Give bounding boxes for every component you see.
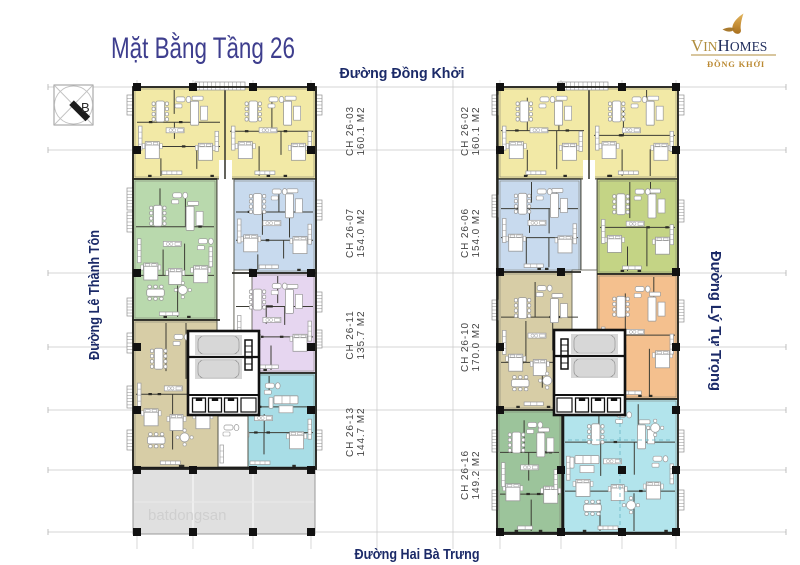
svg-text:170.0 M2: 170.0 M2 — [471, 323, 482, 372]
svg-text:CH 26-13: CH 26-13 — [345, 407, 356, 457]
svg-text:154.0 M2: 154.0 M2 — [356, 209, 367, 258]
svg-text:154.0 M2: 154.0 M2 — [471, 209, 482, 258]
svg-text:batdongsan: batdongsan — [148, 507, 226, 524]
svg-text:B: B — [81, 100, 90, 115]
svg-text:CH 26-07: CH 26-07 — [345, 208, 356, 258]
svg-text:160.1 M2: 160.1 M2 — [356, 107, 367, 156]
svg-text:144.7 M2: 144.7 M2 — [356, 408, 367, 457]
svg-text:CH 26-06: CH 26-06 — [460, 208, 471, 258]
svg-text:Đường Lê Thành Tôn: Đường Lê Thành Tôn — [86, 230, 103, 360]
svg-text:Đường Lý Tự Trọng: Đường Lý Tự Trọng — [707, 251, 724, 391]
svg-text:160.1 M2: 160.1 M2 — [471, 107, 482, 156]
svg-text:VINHOMES: VINHOMES — [691, 36, 767, 55]
svg-text:Đường Hai Bà Trưng: Đường Hai Bà Trưng — [355, 546, 480, 563]
svg-text:CH 26-16: CH 26-16 — [460, 450, 471, 500]
svg-text:149.2 M2: 149.2 M2 — [471, 451, 482, 500]
svg-text:CH 26-10: CH 26-10 — [460, 322, 471, 372]
svg-text:Đường Đồng Khởi: Đường Đồng Khởi — [340, 65, 465, 82]
svg-text:135.7 M2: 135.7 M2 — [356, 311, 367, 360]
svg-text:CH 26-03: CH 26-03 — [345, 106, 356, 156]
svg-text:CH 26-11: CH 26-11 — [345, 310, 356, 359]
svg-text:CH 26-02: CH 26-02 — [460, 106, 471, 156]
svg-text:Mặt Bằng Tầng 26: Mặt Bằng Tầng 26 — [111, 32, 295, 65]
svg-text:ĐỒNG KHỞI: ĐỒNG KHỞI — [707, 59, 765, 69]
